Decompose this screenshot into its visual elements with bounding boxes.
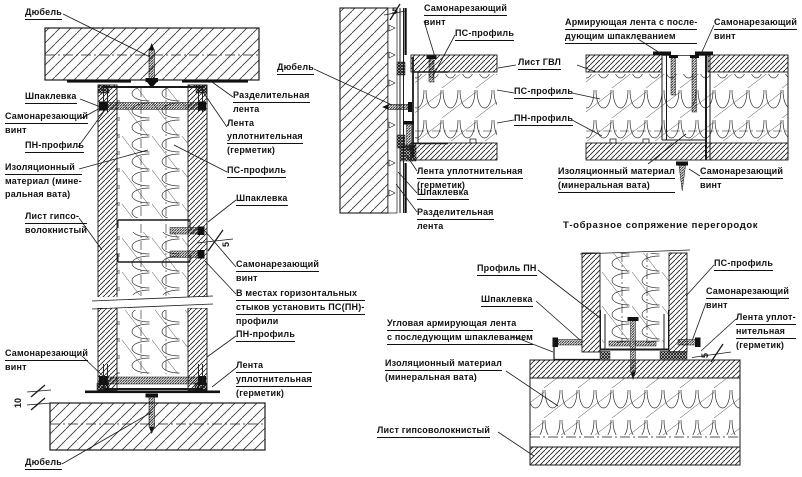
- label-screw-mid-right: Самонарезающийвинт: [714, 16, 797, 43]
- label-corner-tape: Угловая армирующая лентас последующим шп…: [387, 317, 533, 345]
- label-pn-profile-right: ПН-профиль: [236, 328, 295, 342]
- label-pn-profile-left: ПН-профиль: [25, 139, 84, 153]
- dim-5-corner: 5: [700, 353, 710, 358]
- label-screw-corner: Самонарезающийвинт: [706, 285, 789, 312]
- label-screw-right: Самонарезающийвинт: [236, 258, 319, 285]
- label-putty-mid: Шпаклевка: [417, 186, 469, 200]
- label-seal-tape-top: Лентауплотнительная(герметик): [227, 117, 303, 156]
- label-insulation-mid: Изоляционный материал(минеральная вата): [558, 165, 675, 193]
- label-seal-tape-bottom: Лентауплотнительная(герметик): [236, 359, 312, 400]
- label-screw-top-left: Самонарезающийвинт: [5, 110, 88, 137]
- dim-5-top: 5: [392, 6, 397, 16]
- label-ps-profile-break: ПС-профиль: [514, 85, 573, 99]
- dim-5-joint: 5: [221, 242, 231, 247]
- label-screw-bottom-left: Самонарезающийвинт: [5, 347, 88, 374]
- label-dowel-mid: Дюбель: [277, 61, 314, 75]
- drawing-canvas: 5 10 5 5: [0, 0, 802, 477]
- label-screw-mid-bottom: Самонарезающийвинт: [700, 165, 783, 192]
- drawing-title: Т-образное сопряжение перегородок: [563, 219, 758, 232]
- label-insulation-left: Изоляционныйматериал (мине-ральная вата): [5, 161, 82, 200]
- label-gvl-sheet-corner: Лист гипсоволокнистый: [377, 424, 490, 438]
- label-joint-note: В местах горизонтальныхстыков установить…: [236, 287, 365, 328]
- label-gvl-left: Лист гипсо-волокнистый: [25, 210, 87, 237]
- label-putty-corner: Шпаклевка: [481, 293, 533, 307]
- label-separation-tape-mid: Разделительнаялента: [417, 206, 494, 233]
- label-putty-right: Шпаклевка: [236, 192, 288, 206]
- label-ps-profile-mid: ПС-профиль: [455, 27, 514, 41]
- dim-10-gap: 10: [13, 398, 23, 408]
- label-separation-tape: Разделительнаялента: [233, 89, 310, 116]
- label-dowel-bottom: Дюбель: [25, 456, 62, 470]
- label-putty-left: Шпаклевка: [25, 90, 77, 104]
- label-dowel-top: Дюбель: [25, 6, 62, 20]
- label-seal-tape-corner: Лента уплот-нительная(герметик): [736, 311, 796, 352]
- label-pn-profile-break: ПН-профиль: [514, 112, 573, 126]
- label-gvl-sheet-mid: Лист ГВЛ: [518, 56, 561, 70]
- label-insulation-corner: Изоляционный материал(минеральная вата): [385, 357, 502, 384]
- label-screw-mid-top: Самонарезающийвинт: [424, 2, 507, 29]
- label-ps-profile-left: ПС-профиль: [227, 164, 286, 178]
- label-pn-profile-corner: Профиль ПН: [477, 262, 537, 276]
- label-reinforcing-tape: Армирующая лента с после-дующим шпаклева…: [565, 16, 697, 44]
- label-ps-profile-corner: ПС-профиль: [714, 257, 773, 271]
- construction-detail-sheet: 5 10 5 5 Дюбель Шпаклевка Самонарезающий…: [0, 0, 802, 477]
